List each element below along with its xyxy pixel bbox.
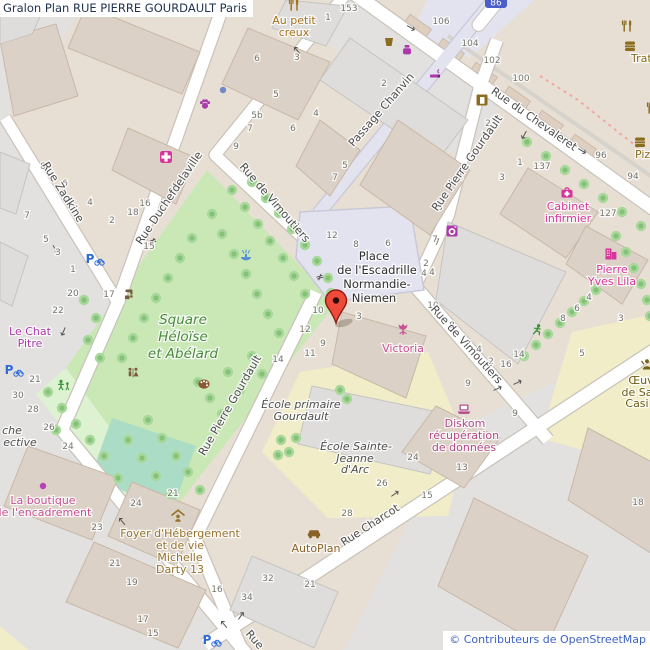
house-number: 12 <box>326 231 337 241</box>
house-number: 4 <box>429 268 435 278</box>
house-number: 3 <box>618 314 624 324</box>
tree-icon-center <box>115 475 120 480</box>
poi-label-pizzeria: Pizzeria <box>635 148 650 161</box>
house-number: 23 <box>91 523 102 533</box>
house-number: 127 <box>599 209 616 219</box>
house-number: 21 <box>29 375 40 385</box>
house-number: 30 <box>12 391 24 401</box>
house-number: 6 <box>290 124 296 134</box>
poi-label-ecole-primaire-gourdault: Gourdault <box>274 410 329 423</box>
poi-label-au-petit-creux: creux <box>279 26 310 39</box>
tree-icon-center <box>623 249 628 254</box>
tree-icon-center <box>255 221 260 226</box>
house-number: 3 <box>499 173 505 183</box>
tree-icon-center <box>219 231 224 236</box>
transit-badge: 86 <box>485 0 507 9</box>
house-number: 11 <box>304 349 315 359</box>
tree-icon-center <box>543 153 548 158</box>
tree-icon-center <box>600 195 605 200</box>
tree-icon-center <box>159 435 164 440</box>
house-number: 2 <box>381 79 387 89</box>
tree-icon-center <box>278 437 283 442</box>
tree-icon-center <box>638 281 643 286</box>
house-number: 14 <box>272 355 284 365</box>
house-number: 18 <box>632 498 644 508</box>
tree-icon-center <box>139 455 144 460</box>
tree-icon-center <box>207 395 212 400</box>
house-number: 5 <box>579 349 585 359</box>
marker-dot <box>333 297 339 303</box>
house-number: 7 <box>432 235 438 245</box>
house-number: 26 <box>376 479 388 489</box>
house-number: 106 <box>432 17 449 27</box>
house-number: 5 <box>342 161 348 171</box>
svg-text:P: P <box>5 363 14 377</box>
poi-poi-dot-blue[interactable] <box>220 87 226 93</box>
house-number: 153 <box>340 4 357 14</box>
tree-icon-center <box>259 371 264 376</box>
poi-label-la-boutique: de l'encadrement <box>0 506 92 519</box>
house-number: 4 <box>421 269 427 279</box>
house-number: 9 <box>465 379 471 389</box>
house-number: 24 <box>130 499 142 509</box>
tree-icon-center <box>177 255 182 260</box>
tree-icon-center <box>276 330 281 335</box>
house-number: 4 <box>313 109 319 119</box>
house-number: 6 <box>385 239 391 249</box>
house-number: 4 <box>586 293 592 303</box>
house-number: 10 <box>312 306 324 316</box>
house-number: 22 <box>52 306 63 316</box>
tree-icon-center <box>81 297 86 302</box>
tree-icon-center <box>85 337 90 342</box>
tree-icon-center <box>291 273 296 278</box>
tree-icon-center <box>293 435 298 440</box>
tree-icon-center <box>562 167 567 172</box>
house-number: 21 <box>304 580 315 590</box>
tree-icon-center <box>302 291 307 296</box>
tree-icon-center <box>229 187 234 192</box>
transit-badge-label: 86 <box>490 0 502 9</box>
tree-icon-center <box>101 453 106 458</box>
tree-icon-center <box>613 233 618 238</box>
house-number: 5 <box>43 235 49 245</box>
house-number: 7 <box>24 211 30 221</box>
house-number: 15 <box>147 629 158 639</box>
tree-icon-center <box>644 297 649 302</box>
tree-icon-center <box>130 335 135 340</box>
house-number: 104 <box>461 39 478 49</box>
tree-icon-center <box>265 311 270 316</box>
svg-text:P: P <box>86 252 95 266</box>
house-number: 7 <box>247 124 253 134</box>
tree-icon-center <box>173 453 178 458</box>
house-number: 16 <box>211 585 223 595</box>
house-number: 9 <box>233 142 239 152</box>
tree-icon-center <box>243 271 248 276</box>
tree-icon-center <box>185 469 190 474</box>
tree-icon-center <box>153 473 158 478</box>
house-number: 3 <box>294 53 300 63</box>
house-number: 102 <box>483 56 500 66</box>
tree-icon-center <box>638 223 643 228</box>
poi-label-creche-partial: ective <box>3 436 37 449</box>
house-number: 137 <box>533 162 550 172</box>
tree-icon-center <box>280 255 285 260</box>
house-number: 8 <box>560 314 566 324</box>
house-number: 4 <box>87 198 93 208</box>
house-number: 1 <box>325 13 331 23</box>
house-number: 2 <box>423 259 429 269</box>
house-number: 7 <box>332 173 338 183</box>
tree-icon-center <box>267 238 272 243</box>
poi-laundry[interactable] <box>447 226 458 237</box>
house-number: 1 <box>70 265 76 275</box>
house-number: 96 <box>595 151 607 161</box>
poi-label-autoplan: AutoPlan <box>292 542 341 555</box>
house-number: 9 <box>512 409 518 419</box>
house-number: 12 <box>299 325 310 335</box>
house-number: 26 <box>43 423 55 433</box>
house-number: 16 <box>500 360 512 370</box>
tree-icon-center <box>581 181 586 186</box>
poi-artwork[interactable] <box>198 379 209 388</box>
house-number: 6 <box>254 54 260 64</box>
tree-icon-center <box>545 331 550 336</box>
poi-label-victoria: Victoria <box>382 342 424 355</box>
tree-icon-center <box>197 487 202 492</box>
attribution-openstreetmap[interactable]: © Contributeurs de OpenStreetMap <box>443 631 650 650</box>
poi-label-square-heloise-abelard: Square <box>159 312 207 328</box>
tree-icon-center <box>59 405 64 410</box>
tree-icon-center <box>593 287 598 292</box>
tree-icon-center <box>254 291 259 296</box>
tree-icon-center <box>225 369 230 374</box>
tree-icon-center <box>165 275 170 280</box>
poi-label-pierre-yves-lila: Yves Lila <box>587 275 636 288</box>
tree-icon-center <box>242 204 247 209</box>
tree-icon-center <box>344 396 349 401</box>
tree-icon-center <box>145 417 150 422</box>
house-number: 3 <box>55 248 61 258</box>
house-number: 17 <box>137 615 148 625</box>
tree-icon-center <box>125 437 130 442</box>
poi-label-le-chat-pitre: Pitre <box>18 337 43 350</box>
poi-label-place-escadrille-normandie-niemen: de l'Escadrille <box>337 263 417 277</box>
poi-label-foyer-michelle-darty: Darty 13 <box>156 563 204 576</box>
tree-icon-center <box>97 355 102 360</box>
poi-label-trattoria: Trattoria <box>630 52 650 65</box>
poi-label-square-heloise-abelard: et Abélard <box>148 346 219 362</box>
house-number: 17 <box>103 290 114 300</box>
poi-entrance-door[interactable] <box>477 95 488 106</box>
poi-label-place-escadrille-normandie-niemen: Normandie- <box>343 277 410 291</box>
tree-icon-center <box>631 265 636 270</box>
tree-icon-center <box>314 258 319 263</box>
house-number: 21 <box>109 559 120 569</box>
house-number: 20 <box>67 289 79 299</box>
tree-icon-center <box>141 315 146 320</box>
poi-clinic[interactable] <box>160 151 172 163</box>
house-number: 6 <box>574 304 580 314</box>
poi-label-place-escadrille-normandie-niemen: Niemen <box>352 291 396 305</box>
poi-label-cabinet-infirmier: infirmier <box>545 212 592 225</box>
tree-icon-center <box>325 275 330 280</box>
map-canvas[interactable]: →→→→→→→→→→→→≠≠153110610410210096946355b4… <box>0 0 650 650</box>
tree-icon-center <box>189 235 194 240</box>
house-number: 24 <box>62 442 74 452</box>
poi-cafe[interactable] <box>385 38 393 46</box>
house-number: 5 <box>273 90 279 100</box>
house-number: 28 <box>341 509 353 519</box>
tree-icon-center <box>87 437 92 442</box>
tree-icon-center <box>231 251 236 256</box>
house-number: 18 <box>127 208 139 218</box>
house-number: 9 <box>320 339 326 349</box>
tree-icon-center <box>153 295 158 300</box>
poi-label-ecole-sainte-jeanne-d-arc: d'Arc <box>341 463 369 476</box>
tree-icon-center <box>209 211 214 216</box>
house-number: 32 <box>262 574 273 584</box>
house-number: 2 <box>109 216 115 226</box>
tree-icon-center <box>337 387 342 392</box>
tree-icon-center <box>73 421 78 426</box>
tree-icon-center <box>119 355 124 360</box>
poi-label-square-heloise-abelard: Héloïse <box>158 329 208 345</box>
house-number: 5b <box>251 111 263 121</box>
house-number: 13 <box>456 463 467 473</box>
house-number: 100 <box>512 74 529 84</box>
map-render[interactable]: →→→→→→→→→→→→≠≠153110610410210096946355b4… <box>0 0 650 650</box>
house-number: 1 <box>517 158 523 168</box>
tree-icon-center <box>275 452 280 457</box>
poi-label-oeuvre: Casi <box>625 397 648 410</box>
house-number: 19 <box>126 578 138 588</box>
house-number: 28 <box>27 405 39 415</box>
tree-icon-center <box>533 342 538 347</box>
tree-icon-center <box>286 449 291 454</box>
house-number: 14 <box>513 350 525 360</box>
page-title: Gralon Plan RUE PIERRE GOURDAULT Paris <box>0 0 253 17</box>
house-number: 16 <box>139 199 151 209</box>
poi-label-diskom: de données <box>432 441 496 454</box>
house-number: 21 <box>167 489 178 499</box>
house-number: 15 <box>421 491 432 501</box>
house-number: 3 <box>356 312 362 322</box>
house-number: 34 <box>241 593 253 603</box>
tree-icon-center <box>45 389 50 394</box>
svg-text:P: P <box>203 633 212 647</box>
tree-icon-center <box>619 209 624 214</box>
house-number: 94 <box>627 172 639 182</box>
tree-icon-center <box>93 315 98 320</box>
poi-label-place-escadrille-normandie-niemen: Place <box>359 249 390 263</box>
house-number: 24 <box>407 453 419 463</box>
